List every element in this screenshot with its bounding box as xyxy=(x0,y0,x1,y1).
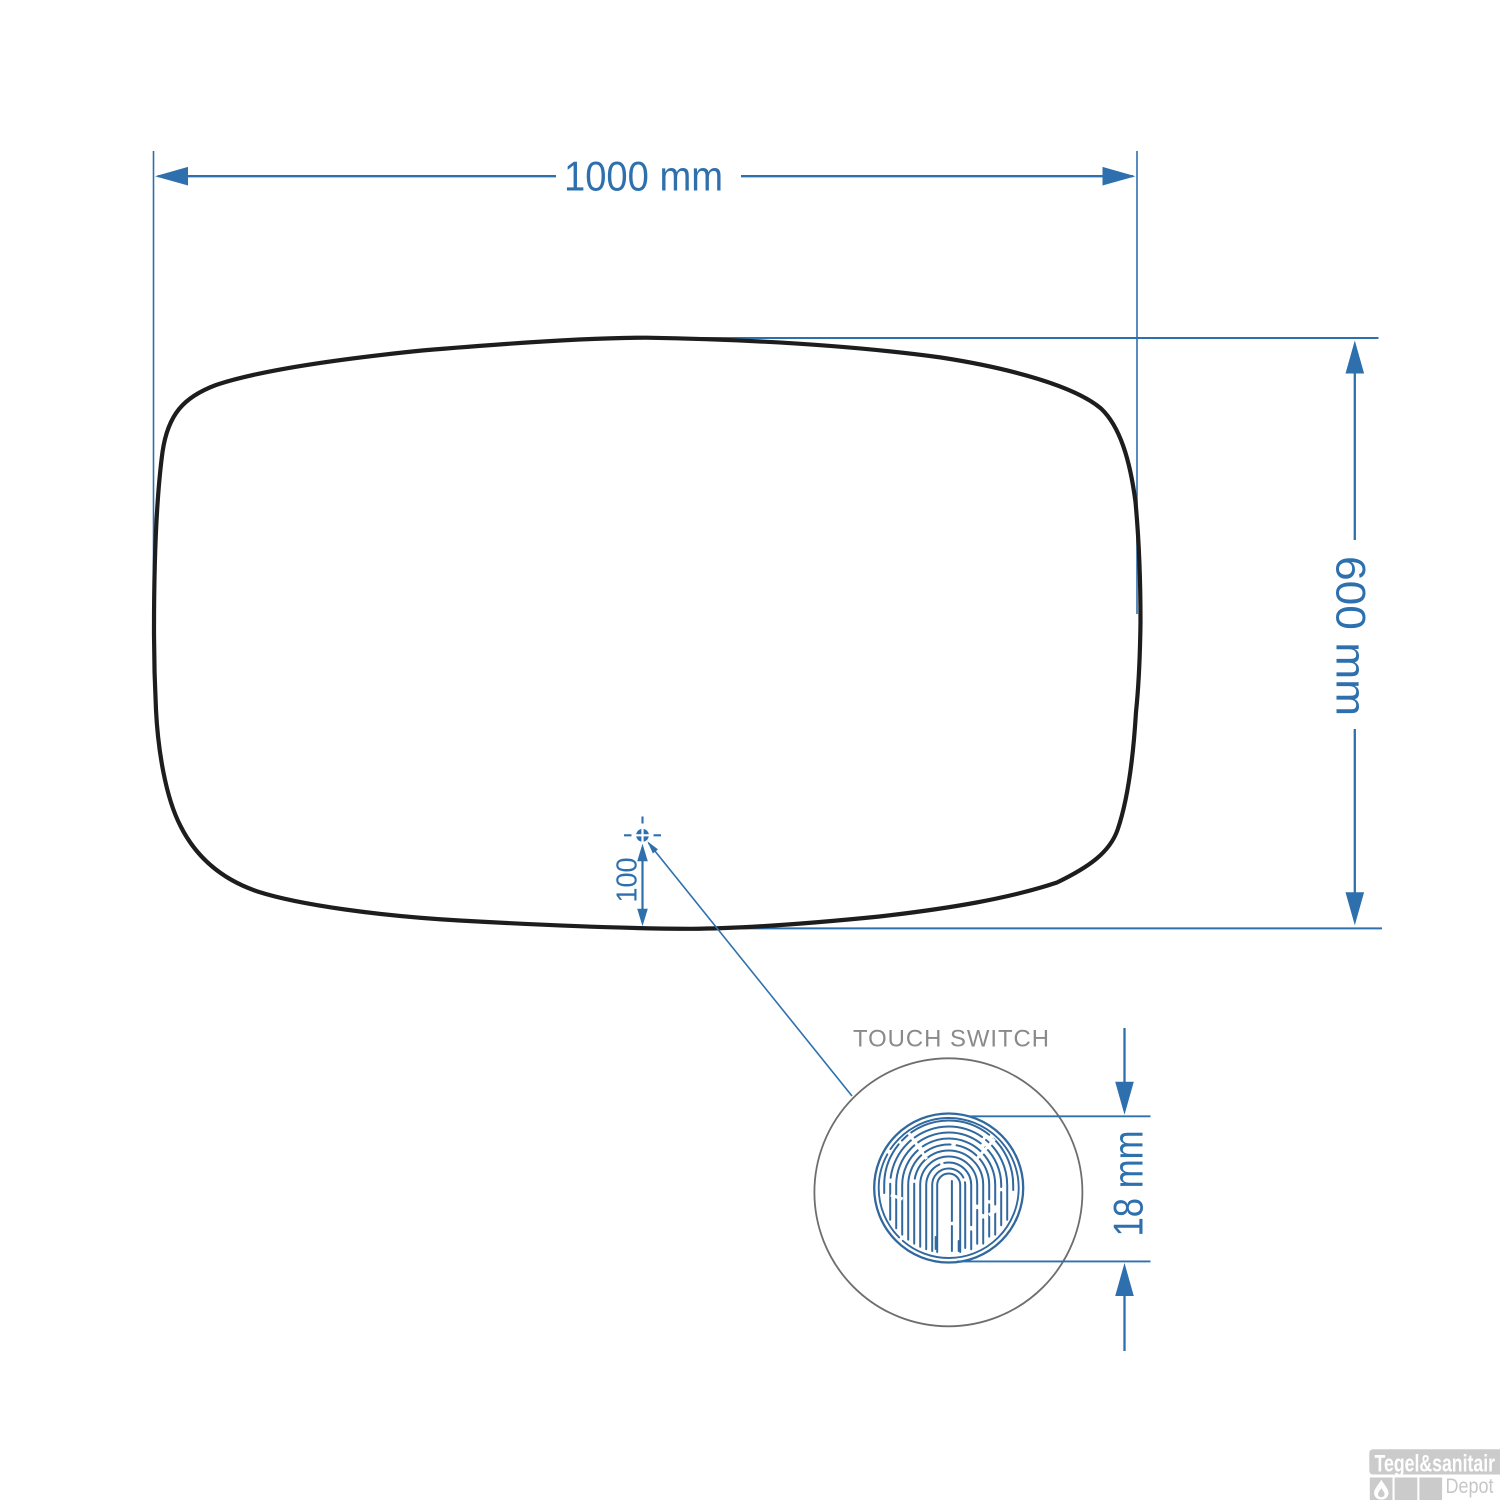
svg-text:100: 100 xyxy=(612,858,644,903)
svg-text:Depot: Depot xyxy=(1446,1474,1494,1498)
svg-text:18 mm: 18 mm xyxy=(1105,1131,1152,1237)
svg-text:600 mm: 600 mm xyxy=(1328,556,1375,716)
svg-text:TOUCH SWITCH: TOUCH SWITCH xyxy=(853,1026,1050,1053)
svg-text:1000 mm: 1000 mm xyxy=(564,153,723,200)
